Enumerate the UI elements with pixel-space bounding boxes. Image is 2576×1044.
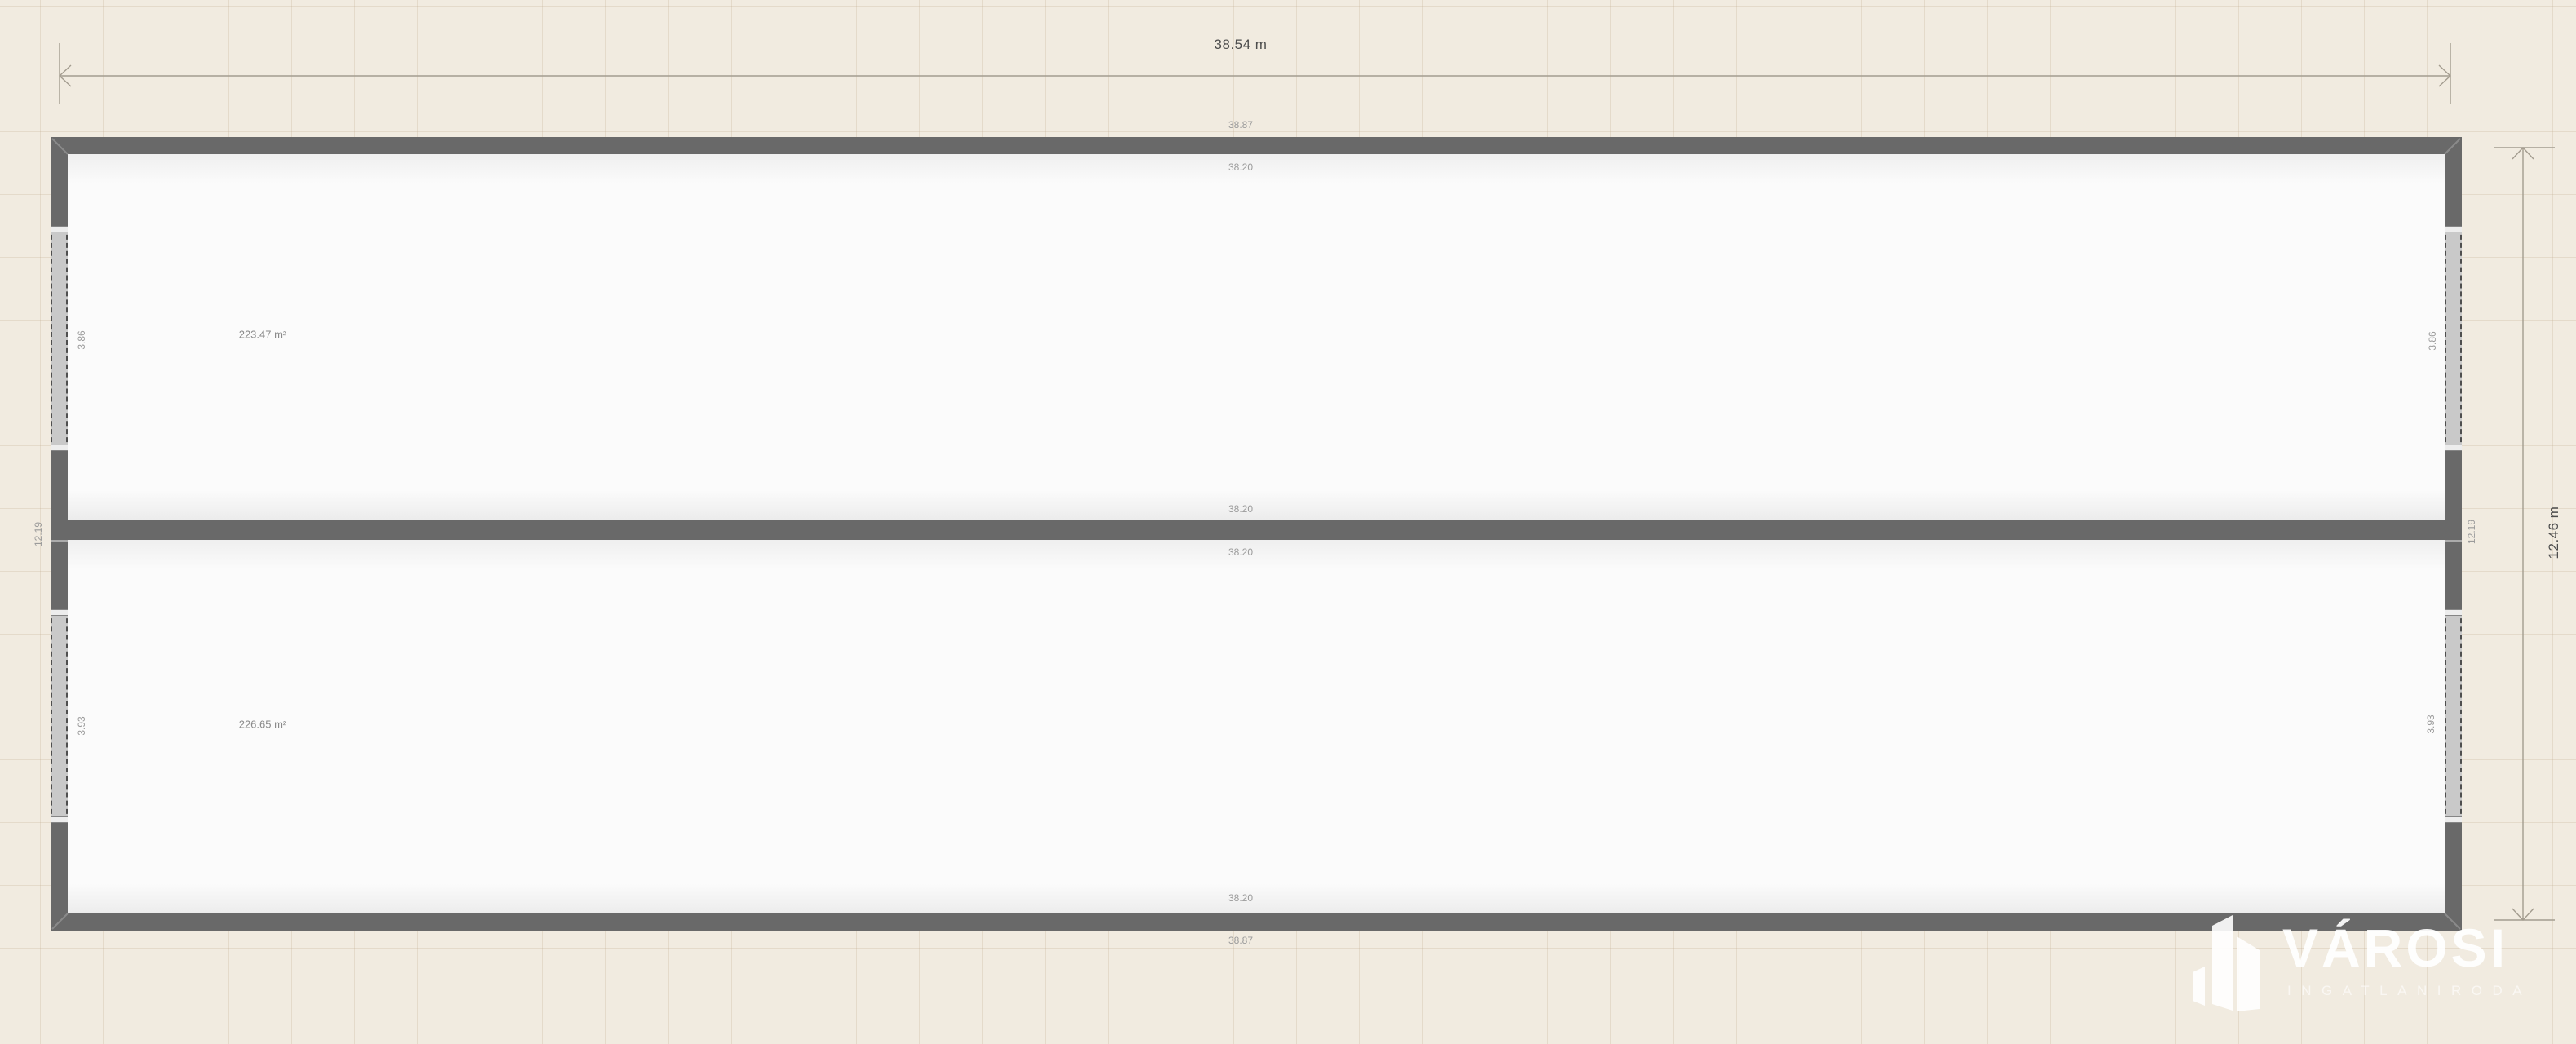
window-lower-left-size: 3.93 (76, 716, 87, 735)
brand-subtitle: INGATLANIRODA (2287, 983, 2532, 999)
bottom-outer-label: 38.87 (1228, 935, 1253, 946)
window-upper-right-size: 3.86 (2427, 331, 2438, 350)
window-cap (2445, 609, 2462, 616)
building-outline (51, 137, 2462, 931)
room-lower (68, 540, 2445, 913)
watermark-logo: VÁROSI INGATLANIRODA (2186, 909, 2545, 1015)
room-upper-area-label: 223.47 m² (239, 329, 287, 341)
top-outer-label: 38.87 (1228, 119, 1253, 130)
divider-upper-label: 38.20 (1228, 503, 1253, 515)
window-upper-left (51, 227, 68, 450)
window-cap (51, 816, 68, 823)
window-cap (51, 226, 68, 232)
window-cap (2445, 226, 2462, 232)
window-upper-left-size: 3.86 (76, 330, 87, 349)
divider-lower-label: 38.20 (1228, 546, 1253, 558)
overall-width-label: 38.54 m (1215, 37, 1268, 53)
top-inner-label: 38.20 (1228, 161, 1253, 173)
window-cap (2445, 816, 2462, 823)
window-cap (51, 445, 68, 451)
left-wall-inner-label: 12.19 (33, 522, 44, 546)
floorplan-canvas: 38.54 m 38.87 38.20 38.20 38.20 38.20 38… (0, 0, 2576, 1044)
window-lower-right (2445, 610, 2462, 822)
bottom-inner-label: 38.20 (1228, 892, 1253, 904)
window-lower-left (51, 610, 68, 822)
overall-height-label: 12.46 m (2546, 507, 2562, 560)
brand-name: VÁROSI (2282, 921, 2508, 975)
window-cap (51, 609, 68, 616)
divider-wall (51, 520, 2462, 542)
buildings-icon (2186, 909, 2268, 1015)
window-lower-right-size: 3.93 (2425, 714, 2437, 733)
right-wall-inner-label: 12.19 (2466, 520, 2477, 544)
window-cap (2445, 445, 2462, 451)
window-upper-right (2445, 227, 2462, 450)
room-lower-area-label: 226.65 m² (239, 719, 287, 731)
room-upper (68, 154, 2445, 520)
